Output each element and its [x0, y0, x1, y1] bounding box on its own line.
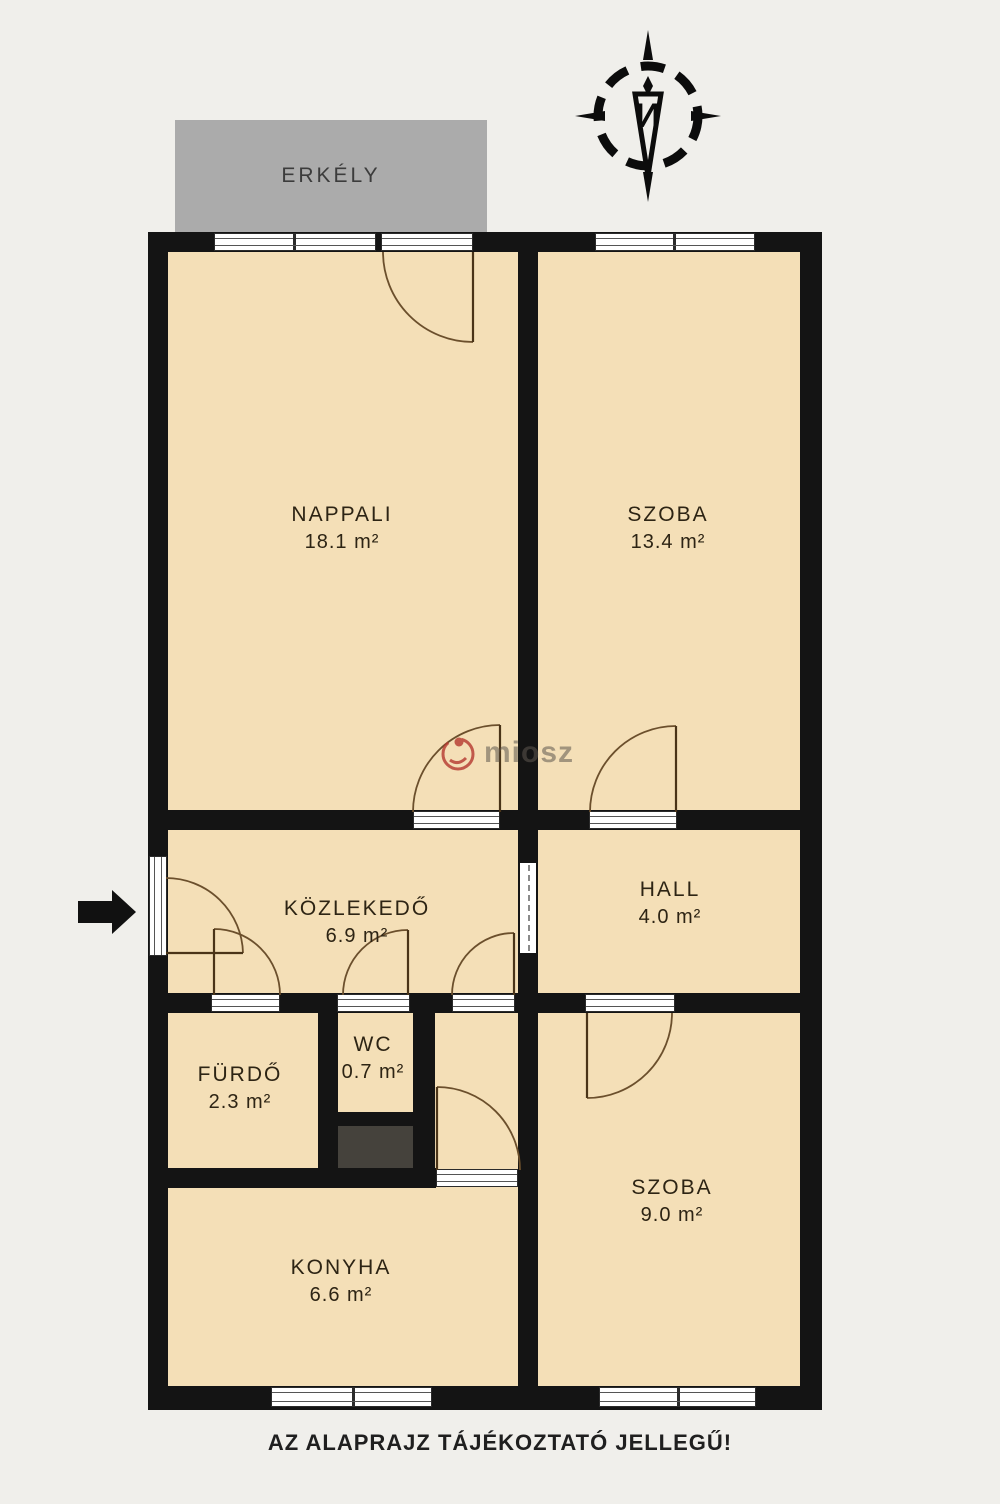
window-divider: [673, 233, 676, 251]
watermark-text: miosz: [484, 736, 574, 770]
entrance-arrow-icon: [78, 890, 136, 934]
door-wc: [337, 994, 410, 1012]
compass-north-icon: И: [573, 26, 723, 206]
wall: [148, 1168, 436, 1188]
room-label-szoba-top: SZOBA 13.4 m²: [627, 503, 708, 554]
wall: [338, 1112, 413, 1126]
window-divider: [352, 1387, 355, 1407]
room-label-wc: WC 0.7 m²: [342, 1033, 405, 1084]
room-label-nappali: NAPPALI 18.1 m²: [291, 503, 392, 554]
room-label-konyha: KONYHA 6.6 m²: [291, 1256, 392, 1307]
room-label-szoba-bottom: SZOBA 9.0 m²: [631, 1176, 712, 1227]
door-szoba-bottom: [585, 994, 675, 1012]
window-szoba-bottom: [599, 1387, 756, 1407]
window-szoba-top: [595, 233, 755, 251]
window-divider: [293, 233, 296, 251]
passage-opening: [520, 863, 536, 953]
door-konyha: [436, 1169, 518, 1187]
watermark-logo-icon: [438, 733, 478, 773]
room-label-furdo: FÜRDŐ 2.3 m²: [198, 1063, 283, 1114]
door-balcony: [381, 233, 473, 251]
shaft: [338, 1126, 413, 1168]
compass-letter: И: [636, 97, 660, 135]
floor-plan: ERKÉLY: [0, 0, 1000, 1504]
door-nappali: [413, 811, 500, 829]
watermark: miosz: [438, 733, 574, 773]
window-konyha: [271, 1387, 432, 1407]
wall: [413, 1013, 435, 1188]
door-corridor: [452, 994, 515, 1012]
room-label-hall: HALL 4.0 m²: [639, 878, 702, 929]
door-furdo: [211, 994, 280, 1012]
window-divider: [677, 1387, 680, 1407]
door-szoba-top: [589, 811, 677, 829]
window-nappali: [214, 233, 376, 251]
disclaimer-text: AZ ALAPRAJZ TÁJÉKOZTATÓ JELLEGŰ!: [268, 1430, 732, 1456]
wall: [318, 1013, 338, 1168]
balcony-label: ERKÉLY: [281, 164, 380, 188]
entrance-door: [149, 856, 167, 956]
balcony: ERKÉLY: [175, 120, 487, 232]
room-label-kozlekedo: KÖZLEKEDŐ 6.9 m²: [284, 897, 430, 948]
